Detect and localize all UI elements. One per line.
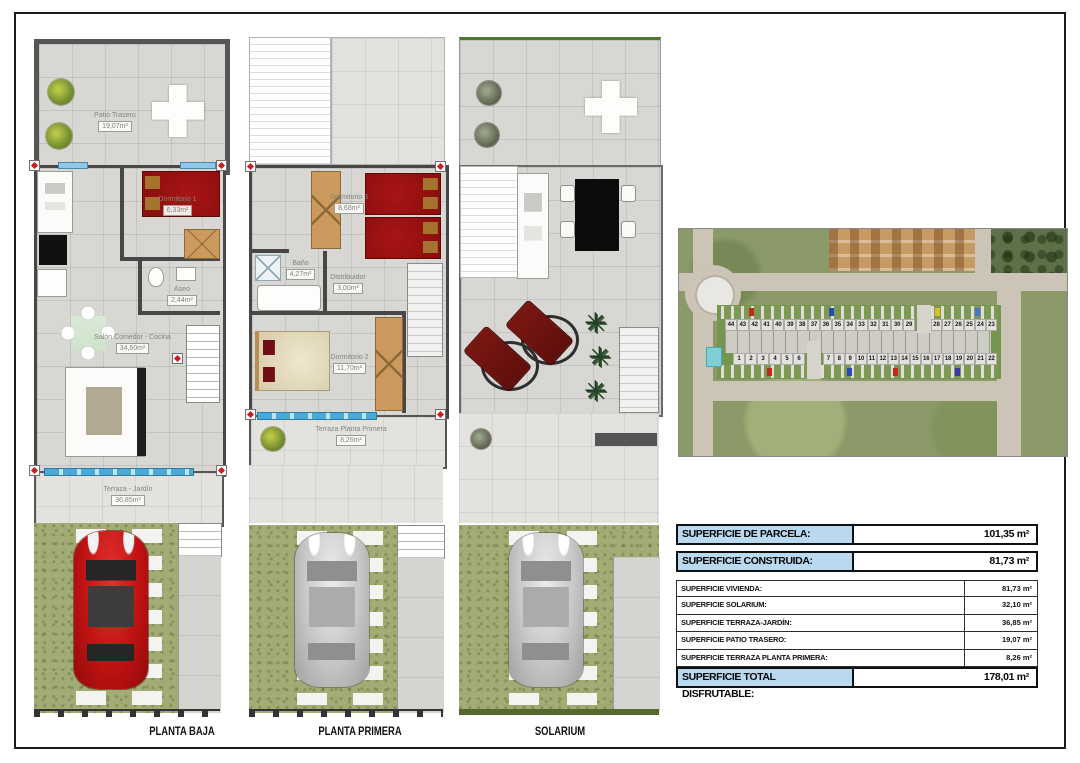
bath-sink: [176, 267, 196, 281]
row-value: 36,85 m²: [965, 615, 1037, 631]
plot-number: 15: [910, 353, 921, 365]
plot-number: 28: [931, 319, 942, 331]
parked-car: [847, 368, 852, 376]
strip-entrance: [917, 305, 931, 333]
plot-number: 2: [745, 353, 757, 365]
floorplan-planta-baja: Patio Trasero 19,07m² Dormitorio 1 6,33m…: [30, 33, 228, 719]
plot-number: 1: [733, 353, 745, 365]
plot-number: 24: [975, 319, 986, 331]
room-name: Dormitorio 2: [307, 353, 392, 362]
plot-number: 39: [784, 319, 796, 331]
room-area: 34,60m²: [116, 343, 150, 354]
patio-table: [585, 81, 637, 133]
room-name: Baño: [273, 259, 328, 268]
pillar-marker: [216, 160, 227, 171]
table-row-construida: SUPERFICIE CONSTRUIDA: 81,73 m²: [676, 551, 1038, 572]
room-label-dormitorio1: Dormitorio 1 6,33m²: [135, 195, 220, 216]
plot-number: 31: [879, 319, 891, 331]
wall: [249, 249, 289, 253]
plot-number: 19: [954, 353, 965, 365]
room-name: Terraza - Jardín: [68, 485, 188, 494]
plant-icon: [475, 123, 499, 147]
stairs: [619, 327, 659, 413]
pillar-marker: [172, 353, 183, 364]
pillar-marker: [435, 409, 446, 420]
plot-number: 23: [986, 319, 997, 331]
room-label-distribuidor: Distribuidor 3,00m²: [317, 273, 379, 294]
room-name: Terraza Planta Primera: [295, 425, 407, 434]
room-area: 2,44m²: [167, 295, 197, 306]
wall: [138, 261, 142, 313]
sliding-door: [44, 468, 194, 476]
car-top-view-silver: [295, 533, 369, 687]
chair: [621, 185, 636, 202]
pool: [706, 347, 722, 367]
plot-number: 7: [823, 353, 834, 365]
room-name: Patio Trasero: [60, 111, 170, 120]
sofa: [65, 367, 145, 457]
side-pavement: [397, 557, 444, 713]
plant-icon: [477, 81, 501, 105]
plan-title-planta-baja: PLANTA BAJA: [116, 726, 247, 738]
wall: [249, 311, 404, 315]
stove: [39, 235, 67, 265]
plot-number: 21: [975, 353, 986, 365]
room-label-dormitorio2: Dormitorio 2 11,70m²: [307, 353, 392, 374]
side-pavement: [613, 557, 660, 713]
row-value: 8,26 m²: [965, 650, 1037, 666]
road: [699, 381, 1021, 401]
fridge: [37, 269, 67, 297]
table-row: SUPERFICIE TERRAZA-JARDÍN: 36,85 m²: [676, 615, 1038, 632]
chair: [621, 221, 636, 238]
table-row: SUPERFICIE SOLARIUM: 32,10 m²: [676, 597, 1038, 614]
wall: [120, 165, 124, 261]
parked-car: [955, 368, 960, 376]
plot-number: 40: [773, 319, 785, 331]
plot-number: 17: [932, 353, 943, 365]
parked-car: [749, 308, 754, 316]
row-label: SUPERFICIE DE PARCELA:: [678, 526, 854, 543]
chair: [560, 185, 575, 202]
stairs: [407, 263, 443, 357]
plant-icon: [471, 429, 491, 449]
plot-number: 25: [964, 319, 975, 331]
room-label-terraza-jardin: Terraza - Jardín 36,85m²: [68, 485, 188, 506]
row-label: SUPERFICIE VIVIENDA:: [677, 581, 965, 596]
palm-plant-icon: ✳: [585, 379, 608, 406]
parked-car: [935, 308, 940, 316]
palm-plant-icon: ✳: [585, 311, 608, 338]
plot-numbers-row: 282726252423: [931, 319, 997, 331]
room-area: 8,68m²: [334, 203, 364, 214]
car-top-view-silver: [509, 533, 583, 687]
room-area: 4,27m²: [286, 269, 316, 280]
pillar-marker: [245, 409, 256, 420]
plan-title-planta-primera: PLANTA PRIMERA: [294, 726, 425, 738]
row-label: SUPERFICIE PATIO TRASERO:: [677, 632, 965, 648]
plot-number: 14: [899, 353, 910, 365]
room-label-terraza-pp: Terraza Planta Primera 8,26m²: [295, 425, 407, 446]
aerial-photo: 44434241403938373635343332313029 2827262…: [678, 228, 1068, 457]
plot-number: 8: [834, 353, 845, 365]
room-area: 3,00m²: [333, 283, 363, 294]
plot-number: 34: [844, 319, 856, 331]
parked-car: [975, 308, 980, 316]
outdoor-kitchen: [517, 173, 549, 279]
room-area: 6,33m²: [163, 205, 193, 216]
row-value: 81,73 m²: [965, 581, 1037, 596]
trees: [979, 229, 1067, 275]
room-name: Aseo: [152, 285, 212, 294]
plot-number: 16: [921, 353, 932, 365]
plot-number: 35: [832, 319, 844, 331]
plot-number: 29: [903, 319, 915, 331]
table-row-total: SUPERFICIE TOTAL DISFRUTABLE: 178,01 m²: [676, 667, 1038, 688]
plant-icon: [261, 427, 285, 451]
plant-icon: [48, 79, 74, 105]
planter-box: [595, 433, 657, 446]
parking-row: [721, 306, 997, 319]
plot-number: 5: [781, 353, 793, 365]
row-value: 32,10 m²: [965, 597, 1037, 613]
house-patios: [725, 331, 991, 353]
row-label: SUPERFICIE CONSTRUIDA:: [678, 553, 854, 570]
housing-block: [829, 229, 979, 271]
open-roof-area: [249, 37, 331, 165]
plot-number: 20: [964, 353, 975, 365]
open-area: [249, 465, 443, 523]
road: [693, 229, 713, 456]
wardrobe: [184, 229, 220, 259]
plan-sheet: Patio Trasero 19,07m² Dormitorio 1 6,33m…: [0, 0, 1080, 763]
sliding-door: [257, 412, 377, 420]
window-icon: [180, 162, 216, 169]
pillar-marker: [216, 465, 227, 476]
row-label: SUPERFICIE SOLARIUM:: [677, 597, 965, 613]
plot-number: 12: [877, 353, 888, 365]
hedge: [459, 709, 659, 715]
row-value: 81,73 m²: [854, 553, 1036, 570]
plan-title-solarium: SOLARIUM: [494, 726, 625, 738]
kitchen-counter: [37, 171, 73, 233]
plot-number: 32: [868, 319, 880, 331]
floorplan-solarium: ✳ ✳ ✳: [457, 33, 665, 719]
bathtub: [257, 285, 321, 311]
table-row-parcela: SUPERFICIE DE PARCELA: 101,35 m²: [676, 524, 1038, 545]
plot-number: 13: [888, 353, 899, 365]
wall: [138, 311, 220, 315]
car-top-view-red: [74, 531, 148, 689]
plot-numbers-row: 78910111213141516171819202122: [823, 353, 997, 365]
room-name: Salón Comedor - Cocina: [70, 333, 195, 342]
room-area: 11,70m²: [333, 363, 366, 374]
plot-number: 6: [793, 353, 805, 365]
room-name: Dormitorio 3: [305, 193, 393, 202]
plot-number: 22: [986, 353, 997, 365]
stairs: [178, 523, 222, 557]
plot-number: 41: [761, 319, 773, 331]
room-area: 36,85m²: [111, 495, 145, 506]
plot-number: 18: [943, 353, 954, 365]
front-fence: [34, 709, 220, 717]
stairs: [397, 525, 445, 559]
side-pavement: [178, 555, 221, 713]
room-name: Dormitorio 1: [135, 195, 220, 204]
strip-entrance: [807, 341, 821, 379]
room-label-salon: Salón Comedor - Cocina 34,60m²: [70, 333, 195, 354]
plot-number: 37: [808, 319, 820, 331]
pillar-marker: [435, 161, 446, 172]
table-row: SUPERFICIE PATIO TRASERO: 19,07 m²: [676, 632, 1038, 649]
pillar-marker: [29, 160, 40, 171]
room-label-patio-trasero: Patio Trasero 19,07m²: [60, 111, 170, 132]
plot-number: 3: [757, 353, 769, 365]
open-area: [459, 413, 659, 523]
stairs: [186, 325, 220, 403]
window-icon: [58, 162, 88, 169]
bed-dormitorio3: [365, 217, 441, 259]
floorplan-planta-primera: Dormitorio 3 8,68m² Baño 4,27m² Distribu…: [247, 33, 445, 719]
plot-number: 4: [769, 353, 781, 365]
row-value: 178,01 m²: [854, 669, 1036, 686]
row-label: SUPERFICIE TERRAZA PLANTA PRIMERA:: [677, 650, 965, 666]
plot-number: 10: [856, 353, 867, 365]
room-area: 8,26m²: [336, 435, 366, 446]
row-label: SUPERFICIE TERRAZA-JARDÍN:: [677, 615, 965, 631]
sofa-cushion: [86, 387, 122, 435]
parked-car: [893, 368, 898, 376]
pergola: [460, 166, 518, 278]
plot-number: 44: [725, 319, 737, 331]
row-label: SUPERFICIE TOTAL DISFRUTABLE:: [678, 669, 854, 686]
parked-car: [829, 308, 834, 316]
plot-number: 11: [867, 353, 878, 365]
table-row: SUPERFICIE TERRAZA PLANTA PRIMERA: 8,26 …: [676, 650, 1038, 667]
plot-number: 43: [737, 319, 749, 331]
plot-number: 42: [749, 319, 761, 331]
plot-number: 9: [845, 353, 856, 365]
toilet: [148, 267, 164, 287]
plot-number: 27: [942, 319, 953, 331]
parked-car: [767, 368, 772, 376]
plot-numbers-row: 44434241403938373635343332313029: [725, 319, 915, 331]
palm-plant-icon: ✳: [589, 345, 612, 372]
plot-number: 33: [856, 319, 868, 331]
pillar-marker: [245, 161, 256, 172]
room-label-aseo: Aseo 2,44m²: [152, 285, 212, 306]
plot-number: 36: [820, 319, 832, 331]
table-row: SUPERFICIE VIVIENDA: 81,73 m²: [676, 580, 1038, 597]
row-value: 101,35 m²: [854, 526, 1036, 543]
open-area: [331, 37, 445, 165]
plot-number: 38: [796, 319, 808, 331]
outdoor-dining-table: [575, 179, 619, 251]
row-value: 19,07 m²: [965, 632, 1037, 648]
plot-number: 26: [953, 319, 964, 331]
road: [975, 229, 991, 277]
pillar-marker: [29, 465, 40, 476]
plot-number: 30: [891, 319, 903, 331]
room-name: Distribuidor: [317, 273, 379, 282]
room-area: 19,07m²: [98, 121, 132, 132]
plot-numbers-row: 123456: [733, 353, 805, 365]
chair: [560, 221, 575, 238]
front-fence: [249, 709, 443, 717]
sofa-back: [137, 368, 146, 456]
room-label-dormitorio3: Dormitorio 3 8,68m²: [305, 193, 393, 214]
